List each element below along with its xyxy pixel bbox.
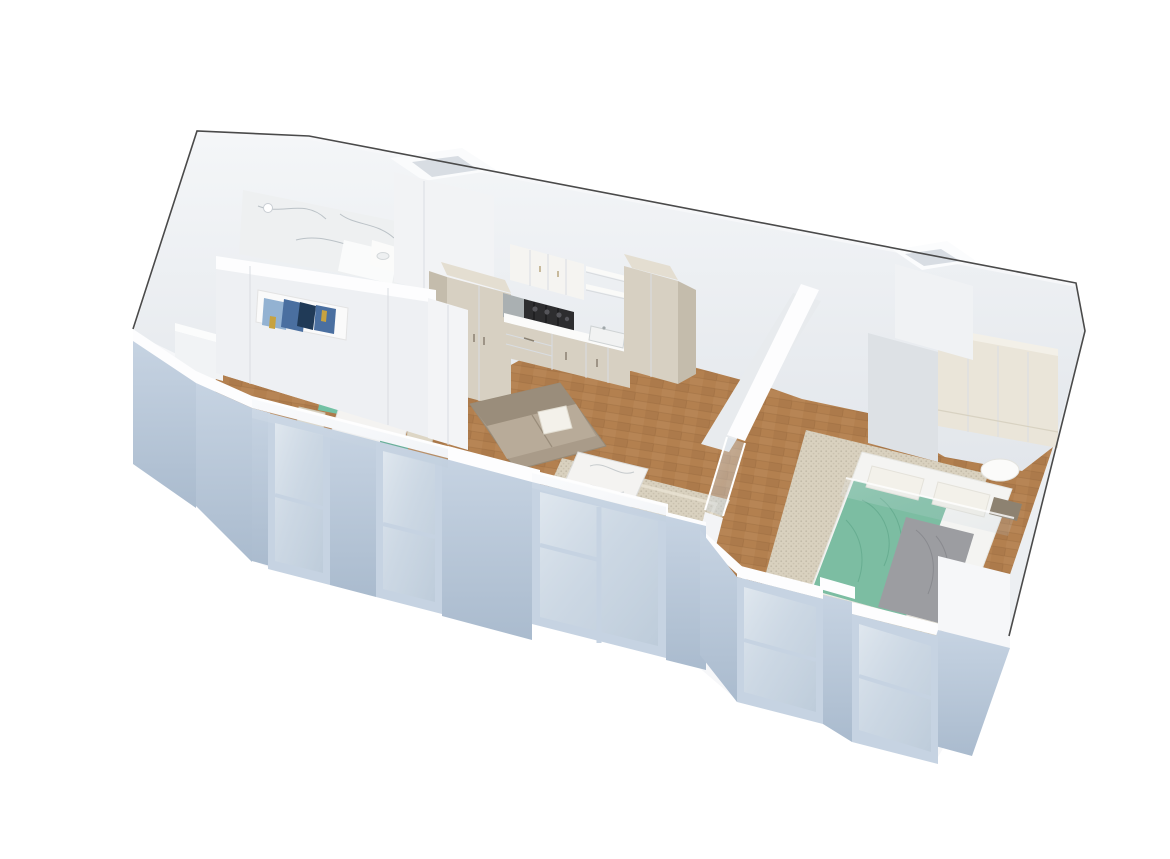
window-dining-1: [268, 413, 330, 585]
window-dining-2: [376, 441, 442, 614]
closet-side-gray: [868, 333, 938, 462]
shower-head: [264, 204, 273, 213]
window-bedroom-2: [852, 614, 938, 764]
floorplan-render-canvas: [0, 0, 1170, 859]
window-bedroom-1: [737, 577, 823, 724]
sink-bowl: [377, 253, 389, 260]
round-nightstand: [981, 459, 1019, 481]
floorplan-svg: [0, 0, 1170, 859]
